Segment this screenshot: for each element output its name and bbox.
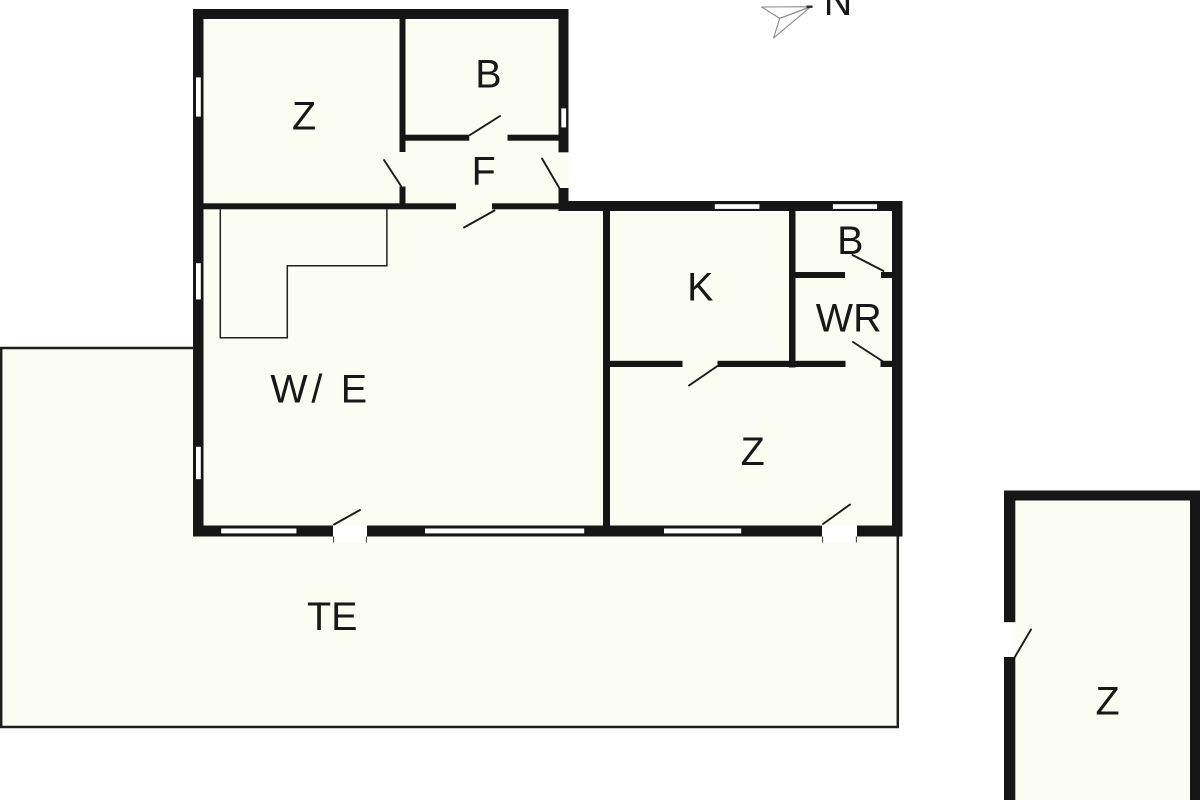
svg-text:Z: Z [1096,680,1120,724]
svg-text:B: B [475,52,501,96]
svg-text:B: B [837,219,863,263]
svg-text:K: K [687,265,713,309]
svg-text:Z: Z [741,430,765,474]
svg-text:W/ E: W/ E [270,367,370,411]
svg-text:WR: WR [816,296,882,340]
svg-text:F: F [472,149,496,193]
svg-text:TE: TE [307,595,357,639]
svg-text:Z: Z [292,95,316,139]
svg-text:N: N [824,0,853,24]
